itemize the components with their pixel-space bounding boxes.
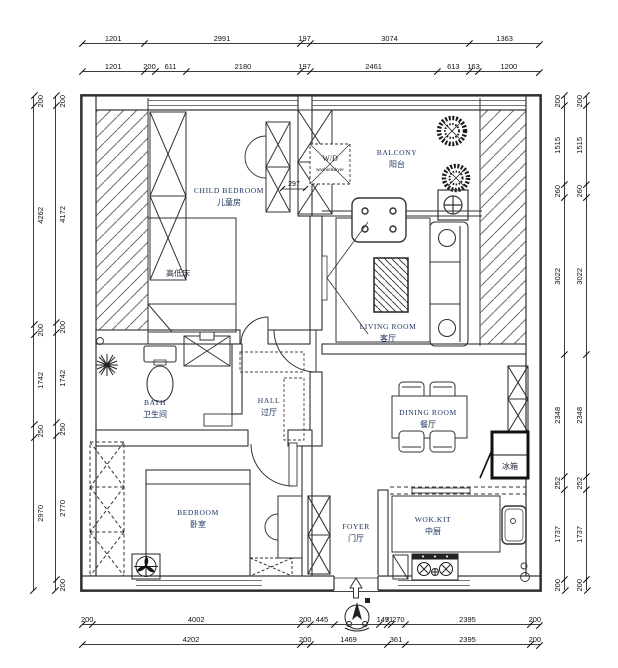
dim-value: 3022 [554, 268, 562, 285]
dim-segment: 197 [300, 31, 310, 44]
plant-icon [439, 118, 465, 144]
dim-value: 200 [554, 579, 562, 592]
dim-value: 252 [554, 477, 562, 490]
dim-segment: 361 [387, 632, 406, 645]
dim-value: 2395 [459, 615, 476, 624]
dim-value: 4172 [59, 206, 67, 223]
dim-segment: 4262 [33, 106, 47, 325]
dim-segment: 200 [55, 580, 69, 590]
dim-segment: 197 [300, 59, 310, 72]
dim-segment: 260 [551, 185, 565, 198]
dim-segment: 4172 [55, 106, 69, 322]
dim-segment: 200 [551, 580, 565, 590]
dim-value: 1200 [501, 62, 518, 71]
dim-segment: 200 [573, 580, 587, 590]
living-room-label: LIVING ROOM [360, 322, 417, 331]
dim-segment: 1363 [469, 31, 540, 44]
dim-segment: 2348 [573, 355, 587, 477]
dim-segment: 200 [530, 612, 540, 625]
dim-segment: 613 [437, 59, 469, 72]
dim-segment: 445 [310, 612, 333, 625]
dining-room-label-zh: 餐厅 [420, 420, 436, 429]
dim-segment: 1737 [573, 490, 587, 580]
floor-plan: W/D washer&dryer 297 [0, 0, 618, 668]
dim-segment: 252 [573, 477, 587, 490]
dim-value: 200 [529, 635, 542, 644]
wok-kitchen-label-zh: 中厨 [425, 526, 441, 536]
sofa [430, 222, 468, 346]
dimension-chain-left-inner: 200417220017422502770200 [55, 96, 69, 590]
dim-value: 445 [316, 615, 329, 624]
dimension-chain-bottom-upper: 2004002200445147912702395200 [82, 612, 540, 625]
dim-value: 4002 [188, 615, 205, 624]
washer-dryer: W/D washer&dryer [310, 144, 350, 184]
dim-value: 1363 [496, 34, 513, 43]
dim-segment: 1469 [310, 632, 386, 645]
dining-set [392, 382, 467, 452]
plant-icon [444, 166, 468, 190]
dim-segment [334, 612, 380, 625]
toilet [144, 346, 176, 402]
dim-value: 1742 [37, 372, 45, 389]
bedroom-desk [265, 496, 302, 558]
dim-value: 2991 [214, 34, 231, 43]
dim-segment: 2970 [33, 438, 47, 590]
bunk-bed [148, 218, 236, 332]
bedroom-label-zh: 卧室 [190, 519, 206, 529]
dimension-chain-right-inner: 2001515260302223482521737200 [551, 96, 565, 590]
shower-head [96, 354, 118, 376]
dim-segment: 1737 [551, 490, 565, 580]
dim-value: 200 [59, 579, 67, 592]
dim-value: 2180 [235, 62, 252, 71]
washer-label: W/D [322, 154, 338, 163]
dim-segment: 1742 [33, 335, 47, 424]
dim-value: 250 [59, 423, 67, 436]
dim-segment: 200 [144, 59, 154, 72]
dim-segment: 200 [530, 632, 540, 645]
dim-value: 361 [390, 635, 403, 644]
dim-value: 4202 [183, 635, 200, 644]
dim-value: 1737 [554, 526, 562, 543]
dim-segment: 3022 [573, 198, 587, 355]
dim-segment: 1201 [82, 59, 144, 72]
dim-segment: 200 [300, 612, 310, 625]
fridge-label: 冰箱 [502, 461, 518, 471]
dim-segment: 260 [573, 185, 587, 198]
dim-segment: 2770 [55, 436, 69, 580]
child-bedroom-wardrobe [150, 112, 186, 280]
door-child-bedroom [241, 317, 268, 344]
child-bedroom-label-zh: 儿童房 [217, 197, 241, 207]
dim-value: 1201 [105, 62, 122, 71]
bunk-bed-label: 高低床 [166, 268, 190, 278]
dim-value: 1515 [554, 137, 562, 154]
dim-segment: 2461 [310, 59, 438, 72]
dim-segment: 611 [155, 59, 187, 72]
dim-value: 2348 [576, 407, 584, 424]
square-table [352, 198, 406, 242]
dim-segment: 4202 [82, 632, 300, 645]
dim-value: 1742 [59, 370, 67, 387]
living-room-label-zh: 客厅 [380, 333, 396, 343]
dim-segment: 1515 [551, 106, 565, 185]
dim-segment: 1201 [82, 31, 144, 44]
dim-value: 252 [576, 477, 584, 490]
dim-value: 1737 [576, 526, 584, 543]
bath-label-zh: 卫生间 [143, 409, 167, 419]
foyer-label-zh: 门厅 [348, 533, 364, 543]
dim-segment: 4002 [92, 612, 300, 625]
dim-value: 250 [37, 425, 45, 438]
dim-segment: 3074 [310, 31, 470, 44]
dim-value: 2970 [37, 505, 45, 522]
fridge: 冰箱 [480, 432, 528, 478]
dim-value: 200 [529, 615, 542, 624]
hall-label: HALL [258, 396, 280, 405]
dim-value: 260 [554, 185, 562, 198]
dim-segment: 200 [300, 632, 310, 645]
dim-segment: 2395 [405, 632, 529, 645]
dim-segment: 252 [551, 477, 565, 490]
dim-segment: 2991 [144, 31, 299, 44]
bedroom-label: BEDROOM [177, 508, 219, 517]
bath-step [204, 414, 232, 426]
dim-segment: 270 [391, 612, 405, 625]
dim-value: 2770 [59, 500, 67, 517]
hall-label-zh: 过厅 [261, 407, 277, 417]
dim-value: 3074 [381, 34, 398, 43]
dim-segment: 2180 [186, 59, 299, 72]
dim-segment: 1742 [55, 333, 69, 423]
dimension-chain-right-outer: 2001515260302223482521737200 [573, 96, 587, 590]
dim-segment: 2395 [405, 612, 529, 625]
dimension-chain-bottom-lower: 420220014693612395200 [82, 632, 540, 645]
dim-value: 611 [165, 62, 177, 71]
dining-room-label: DINING ROOM [399, 408, 457, 417]
washer-sublabel: washer&dryer [316, 167, 344, 172]
dim-value: 613 [447, 62, 460, 71]
coffee-table [374, 258, 408, 312]
tall-cabinet [508, 366, 528, 432]
door-bedroom [251, 443, 297, 486]
dimension-chain-left-outer: 200426220017422502970 [33, 96, 47, 590]
dim-value: 270 [392, 615, 405, 624]
dim-value: 260 [576, 185, 584, 198]
dim-value: 2461 [365, 62, 382, 71]
page: { "drawing_type": "apartment floor plan"… [0, 0, 618, 668]
dim-value: 1515 [576, 137, 584, 154]
gas-stove [412, 554, 458, 580]
child-bedroom-label: CHILD BEDROOM [194, 186, 264, 195]
dim-segment: 1515 [573, 106, 587, 185]
dim-value: 200 [576, 579, 584, 592]
dim-value: 2348 [554, 407, 562, 424]
dim-segment: 1200 [478, 59, 540, 72]
dim-segment: 2348 [551, 355, 565, 477]
dimension-chain-top-outer: 1201299119730741363 [82, 31, 540, 44]
dim-segment: 3022 [551, 198, 565, 355]
dim-value: 1201 [105, 34, 122, 43]
dim-segment: 163 [469, 59, 477, 72]
dim-value: 2395 [459, 635, 476, 644]
balcony-label-zh: 阳台 [389, 159, 405, 169]
dim-value: 1469 [340, 635, 357, 644]
dim-value: 3022 [576, 268, 584, 285]
kitchen-sink [502, 506, 530, 582]
dim-value: 4262 [37, 207, 45, 224]
dim-297: 297 [288, 181, 300, 188]
dimension-chain-top-inner: 1201200611218019724616131631200 [82, 59, 540, 72]
floor-plan-drawing: W/D washer&dryer 297 [0, 0, 618, 668]
wok-kitchen-label: WOK.KIT [415, 515, 451, 524]
foyer-label: FOYER [342, 522, 370, 531]
bedroom-chest [250, 558, 292, 576]
dim-segment: 200 [82, 612, 92, 625]
bath-label: BATH [144, 398, 166, 407]
balcony-label: BALCONY [377, 148, 417, 157]
